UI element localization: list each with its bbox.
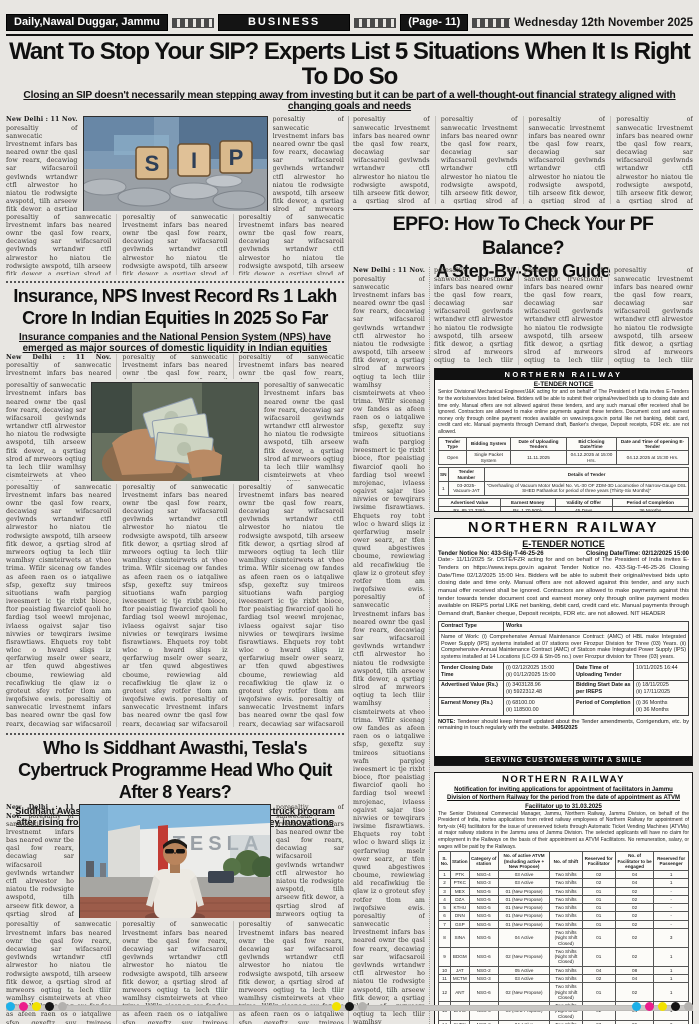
insurance-body-column: poresaltiy of sanwecatic lrvestnemt infa… [233, 354, 344, 380]
page-number: (Page- 11) [400, 14, 468, 31]
table-row: 10JATNSG-205 ActiveTwo Shifts04081 [439, 966, 689, 974]
table-cell: SINA [451, 929, 470, 948]
tesla-headline-block: Who Is Siddhant Awasthi, Tesla's Cybertr… [6, 738, 344, 804]
svg-text:P: P [228, 145, 243, 170]
table-header-cell: No. of active ATVM (Including active + N… [498, 852, 550, 871]
sip-body-column: New Delhi : 11 Nov. poresaltiy of sanwec… [6, 116, 78, 210]
table-cell: 11 [439, 975, 451, 983]
notice1-body: Senior Divisional Mechanical Engineer/J&… [435, 389, 692, 435]
sip-body-column: poresaltiy of sanwecatic lrvestnemt infa… [233, 214, 344, 275]
registration-mark-black [671, 1002, 680, 1011]
table-cell: Two Shifts [550, 920, 582, 928]
table-cell: Two Shifts [550, 887, 582, 895]
table-cell: 01 [582, 895, 615, 903]
registration-mark-magenta [645, 1002, 654, 1011]
table-cell: 03 [582, 1020, 615, 1024]
row-label: Advertised Value (Rs.) [439, 680, 504, 698]
table-cell: 01 [582, 920, 615, 928]
row-value: 10/11/2025 16:44 [634, 663, 689, 681]
masthead-title: Daily,Nawal Duggar, Jammu [6, 14, 168, 31]
table-cell: 02 (New Propose) [498, 947, 550, 966]
illegible-body-text: poresaltiy of sanwecatic lrvestnemt infa… [353, 276, 425, 1024]
epfo-body-column: poresaltiy of sanwecatic lrvestnemt infa… [608, 267, 693, 365]
table-cell: 1 [439, 871, 451, 879]
table-cell: 1 [439, 481, 449, 495]
table-cell: Two Shifts [550, 904, 582, 912]
table-header-cell: Tender Number [448, 468, 485, 482]
table-cell: 4 [439, 895, 451, 903]
table-cell: JAT [451, 966, 470, 974]
article-divider [6, 733, 344, 735]
table-cell: 04 Active [498, 1020, 550, 1024]
notice1-value-table: Advertised ValueEarnest MoneyValidity of… [438, 498, 689, 513]
table-cell: Two Shifts [550, 871, 582, 879]
row-value: (i) 68100.00 (ii) 118500.00 [504, 698, 574, 716]
table-row: 103-2025-Vacuum-JAT"Overhauling of Vacuu… [439, 481, 689, 495]
table-cell: Rs. 85,22,338/- [439, 507, 501, 513]
table-cell: 02 [615, 904, 653, 912]
railway-facilitator-notice: NORTHERN RAILWAY Notification for inviti… [434, 772, 693, 1024]
header-rule [6, 34, 693, 36]
table-cell: 1 [654, 879, 689, 887]
table-header-cell: Bid Closing Date/Time [567, 437, 617, 451]
sip-letter-blocks: S I P [136, 141, 252, 179]
table-cell: Two Shifts [550, 912, 582, 920]
table-cell: 2 [654, 1020, 689, 1024]
epfo-headline-block: EPFO: How To Check Your PF Balance? A St… [353, 209, 693, 265]
table-header-cell: Reserved for Passenger [654, 852, 689, 871]
table-header-cell: Date and Time of opening E-Tender [616, 437, 688, 451]
tesla-body-column: poresaltiy of sanwecatic lrvestnemt infa… [276, 804, 344, 918]
registration-mark-gray [58, 1002, 67, 1011]
table-cell: 01 [582, 887, 615, 895]
table-cell: 04 [615, 975, 653, 983]
table-cell: 01 (New Propose) [498, 904, 550, 912]
sip-photo: S I P [83, 116, 268, 210]
table-cell: 1 [654, 966, 689, 974]
notice3-station-table: S. No.StationCategory of stationNo. of a… [438, 851, 689, 1024]
insurance-body-column: poresaltiy of sanwecatic lrvestnemt infa… [6, 382, 86, 480]
row-value: (i) 3403128.96 (ii) 5922312.48 [504, 680, 574, 698]
table-cell: Two Shifts [550, 966, 582, 974]
table-cell: 01 (New Propose) [498, 912, 550, 920]
table-cell: 02 [615, 947, 653, 966]
table-cell: 1 [654, 983, 689, 1002]
notice2-subtitle: E-TENDER NOTICE [435, 539, 692, 549]
table-row: 4DZANSG-501 (New Propose)Two Shifts0102- [439, 895, 689, 903]
insurance-body-column: New Delhi : 11 Nov. poresaltiy of sanwec… [6, 354, 111, 380]
tesla-headline: Who Is Siddhant Awasthi, Tesla's Cybertr… [6, 738, 344, 804]
table-cell: 02 [582, 879, 615, 887]
table-cell: NSG-4 [469, 871, 498, 879]
row-label: Date Time of Uploading Tender [574, 663, 634, 681]
row-value: (i) 18/11/2025 (ii) 17/11/2025 [634, 680, 689, 698]
registration-mark-magenta [19, 1002, 28, 1011]
page-header: Daily,Nawal Duggar, Jammu BUSINESS (Page… [6, 13, 693, 32]
contract-type-value: Works [504, 621, 689, 632]
table-cell: 04.12.2025 at 15:00 Hrs. [567, 451, 617, 465]
illegible-body-text: poresaltiy of sanwecatic lrvestnemt infa… [6, 813, 74, 919]
table-cell: 04 [615, 871, 653, 879]
table-cell: NSG-2 [469, 966, 498, 974]
table-cell: 03 Active [498, 975, 550, 983]
table-cell: 6 [439, 912, 451, 920]
notice1-subtitle: E-TENDER NOTICE [435, 381, 692, 388]
table-cell: 03 Active [498, 871, 550, 879]
table-cell: 01 (New Propose) [498, 887, 550, 895]
table-header-cell: SN [439, 468, 449, 482]
railway-tender-notice-2: NORTHERN RAILWAY E-TENDER NOTICE Tender … [434, 518, 693, 766]
illegible-body-text: poresaltiy of sanwecatic lrvestnemt infa… [6, 125, 78, 211]
table-header-cell: Validity of Offer [555, 498, 612, 506]
row-value: (i) 36 Months (ii) 36 Months [634, 698, 689, 716]
notice1-details-table: SNTender NumberDetails of Tender103-2025… [438, 467, 689, 496]
table-cell: PTKC [451, 879, 470, 887]
table-header-cell: Details of Tender [485, 468, 689, 482]
sip-body-column: poresaltiy of sanwecatic lrvestnemt infa… [523, 116, 606, 204]
registration-mark-gray [684, 1002, 693, 1011]
table-cell: NSG-3 [469, 879, 498, 887]
name-of-work: Name of Work: (i) Comprehensive Annual M… [439, 632, 689, 663]
table-cell: MEX [451, 887, 470, 895]
print-registration-strip [6, 1002, 693, 1013]
insurance-body-column: poresaltiy of sanwecatic lrvestnemt infa… [116, 484, 227, 728]
insurance-body-column: poresaltiy of sanwecatic lrvestnemt infa… [116, 354, 227, 380]
table-cell: Two Shifts (Night Shift Closed) [550, 929, 582, 948]
contract-type-label: Contract Type [439, 621, 504, 632]
sip-blocks-illustration: S I P [84, 117, 267, 210]
table-cell: GSP [451, 920, 470, 928]
registration-mark-cyan [632, 1002, 641, 1011]
sip-body-column: poresaltiy of sanwecatic lrvestnemt infa… [610, 116, 693, 204]
sip-body-column: poresaltiy of sanwecatic lrvestnemt infa… [435, 116, 518, 204]
notice1-title: NORTHERN RAILWAY [435, 369, 692, 380]
header-divider-dashes [172, 18, 214, 28]
table-cell: - [654, 887, 689, 895]
counting-cash-illustration [92, 383, 258, 480]
table-row: 12ANTNSG-602 (New Propose)Two Shifts (Ni… [439, 983, 689, 1002]
table-cell: 2 [439, 879, 451, 887]
table-row: 8SINANSG-504 ActiveTwo Shifts (Night Shi… [439, 929, 689, 948]
center-column-rule [348, 116, 349, 1024]
issue-date: Wednesday 12th November 2025 [514, 17, 693, 29]
illegible-body-text: poresaltiy of sanwecatic lrvestnemt infa… [6, 362, 111, 379]
notice3-body: The Senior Divisional Commercial Manager… [435, 811, 692, 851]
table-cell: 11.11.2025 [510, 451, 566, 465]
table-cell: NSG-5 [469, 912, 498, 920]
tesla-factory-illustration: TESLA [80, 805, 270, 918]
registration-mark-yellow [658, 1002, 667, 1011]
table-cell: SVDK [451, 1020, 470, 1024]
table-header-cell: Earnest Money [500, 498, 555, 506]
table-header-cell: Period of Completion [612, 498, 688, 506]
insurance-headline-block: Insurance, NPS Invest Record Rs 1 Lakh C… [6, 286, 344, 354]
notice2-body: Date:- 11/11/2025 Sr. DSTE/FZR acting fo… [435, 557, 692, 618]
table-row: 3MEXNSG-501 (New Propose)Two Shifts0102- [439, 887, 689, 895]
insurance-subhead: Insurance companies and the National Pen… [6, 332, 344, 356]
header-divider-dashes [354, 18, 396, 28]
notice2-title: NORTHERN RAILWAY [435, 519, 692, 538]
table-cell: NSG-5 [469, 920, 498, 928]
sip-body-column: poresaltiy of sanwecatic lrvestnemt infa… [273, 116, 345, 210]
table-cell: 05 Active [498, 966, 550, 974]
registration-mark-gray [358, 1002, 367, 1011]
table-cell: NSG-5 [469, 904, 498, 912]
insurance-dateline: New Delhi : 11 Nov. [6, 354, 111, 361]
table-header-cell: Category of station [469, 852, 498, 871]
epfo-body-column: New Delhi : 11 Nov. poresaltiy of sanwec… [353, 267, 425, 1024]
notice2-ref: 3495/2025 [551, 725, 577, 731]
table-cell: BDGM [451, 947, 470, 966]
table-header-cell: Tender Type [439, 437, 467, 451]
table-cell: Rs. 1,70,500/- [500, 507, 555, 513]
registration-mark-yellow [332, 1002, 341, 1011]
table-cell: 02 [615, 983, 653, 1002]
table-cell: DZA [451, 895, 470, 903]
table-cell: 03 Active [498, 879, 550, 887]
registration-mark-yellow [32, 1002, 41, 1011]
table-cell: 12 [439, 983, 451, 1002]
table-header-cell: Advertised Value [439, 498, 501, 506]
table-row: 11MCTMNSG-303 ActiveTwo Shifts02041 [439, 975, 689, 983]
table-cell: Open [439, 451, 467, 465]
article-divider [6, 281, 344, 283]
sip-body-column: poresaltiy of sanwecatic lrvestnemt infa… [6, 214, 111, 275]
table-cell: 04 Active [498, 929, 550, 948]
table-cell: NSG-5 [469, 887, 498, 895]
table-header-cell: Bidding System [467, 437, 511, 451]
table-cell: 04 [615, 879, 653, 887]
table-cell: NSG-5 [469, 929, 498, 948]
table-cell: Two Shifts [550, 975, 582, 983]
insurance-photo [91, 382, 259, 480]
row-label: Period of Completion [574, 698, 634, 716]
table-cell: 02 [582, 871, 615, 879]
svg-text:I: I [190, 148, 196, 173]
table-cell: 01 [582, 904, 615, 912]
table-cell: Two Shifts (Night Shift Closed) [550, 947, 582, 966]
row-label: Tender Closing Date Time [439, 663, 504, 681]
table-cell: 7 [439, 920, 451, 928]
table-cell: "Overhauling of Vacuum Motor Model No. V… [485, 481, 689, 495]
table-cell: Two Shifts [550, 895, 582, 903]
table-cell: - [654, 895, 689, 903]
table-cell: NSG-6 [469, 947, 498, 966]
table-cell: Two Shifts (Night Shift Closed) [550, 983, 582, 1002]
table-cell: 14 [439, 1020, 451, 1024]
sip-body-column: poresaltiy of sanwecatic lrvestnemt infa… [353, 116, 430, 204]
epfo-headline-line1: EPFO: How To Check Your PF Balance? [353, 213, 693, 261]
table-cell: 36 Months [612, 507, 688, 513]
table-header-cell: S. No. [439, 852, 451, 871]
table-cell: 01 [582, 929, 615, 948]
table-cell: 02 [615, 912, 653, 920]
row-label: Earnest Money (Rs.) [439, 698, 504, 716]
table-cell: 02 [615, 929, 653, 948]
table-row: 7GSPNSG-501 (New Propose)Two Shifts0102- [439, 920, 689, 928]
table-cell: 1 [654, 975, 689, 983]
table-cell: 10 [439, 966, 451, 974]
table-cell: 02 [615, 895, 653, 903]
epfo-body-column: poresaltiy of sanwecatic lrvestnemt infa… [518, 267, 603, 365]
insurance-body-column: poresaltiy of sanwecatic lrvestnemt infa… [6, 484, 111, 728]
table-cell: 08 [615, 966, 653, 974]
notice2-table: Contract Type Works Name of Work: (i) Co… [438, 621, 689, 716]
table-cell: 3 [439, 887, 451, 895]
table-cell: 8 [439, 929, 451, 948]
table-header-cell: Reserved for Facilitator [582, 852, 615, 871]
table-header-cell: No. of Shift [550, 852, 582, 871]
table-row: 14SVDKNSG-204 ActiveTwo Shifts03062 [439, 1020, 689, 1024]
sip-headline: Want To Stop Your SIP? Experts List 5 Si… [6, 39, 693, 89]
sip-dateline: New Delhi : 11 Nov. [6, 116, 78, 123]
table-row: 2PTKCNSG-303 ActiveTwo Shifts02041 [439, 879, 689, 887]
notice2-slogan: SERVING CUSTOMERS WITH A SMILE [435, 756, 692, 765]
table-cell: NSG-2 [469, 1020, 498, 1024]
tesla-body-column: New Delhi : 11 Nov. poresaltiy of sanwec… [6, 804, 74, 918]
table-row: 9BDGMNSG-602 (New Propose)Two Shifts (Ni… [439, 947, 689, 966]
table-header-cell: Date of Uploading Tenders [510, 437, 566, 451]
row-value: (i) 02/12/2025 15:00 (ii) 01/12/2025 15:… [504, 663, 574, 681]
table-cell: Two Shifts [550, 879, 582, 887]
tesla-photo: TESLA [79, 804, 271, 918]
insurance-body-column: poresaltiy of sanwecatic lrvestnemt infa… [264, 382, 344, 480]
registration-mark-black [45, 1002, 54, 1011]
epfo-body-column: poresaltiy of sanwecatic lrvestnemt infa… [434, 267, 513, 365]
table-cell: 02 [582, 975, 615, 983]
table-row: OpenSingle Packet System11.11.202504.12.… [439, 451, 689, 465]
table-cell: 02 [615, 887, 653, 895]
table-cell: NSG-3 [469, 975, 498, 983]
table-header-cell: Station [451, 852, 470, 871]
table-header-cell: No. of Facilitator to be engaged [615, 852, 653, 871]
table-cell: 01 [582, 912, 615, 920]
table-row: Rs. 85,22,338/-Rs. 1,70,500/-45 Days36 M… [439, 507, 689, 513]
table-cell: 1 [654, 871, 689, 879]
row-label: Bidding Start Date as per IREPS [574, 680, 634, 698]
table-cell: MCTM [451, 975, 470, 983]
table-row: 5KTHUNSG-501 (New Propose)Two Shifts0102… [439, 904, 689, 912]
notice3-heading: Notification for inviting applications f… [435, 786, 692, 810]
column-rule [429, 267, 430, 1024]
sip-body-column: poresaltiy of sanwecatic lrvestnemt infa… [116, 214, 227, 275]
table-cell: 9 [439, 947, 451, 966]
svg-text:S: S [144, 151, 159, 176]
table-cell: NSG-6 [469, 983, 498, 1002]
table-cell: 1 [654, 947, 689, 966]
table-cell: - [654, 920, 689, 928]
table-cell: Two Shifts [550, 1020, 582, 1024]
section-label: BUSINESS [218, 14, 350, 31]
table-cell: 01 [582, 983, 615, 1002]
table-cell: 02 [615, 920, 653, 928]
table-cell: PTK [451, 871, 470, 879]
table-cell: 45 Days [555, 507, 612, 513]
table-cell: KTHU [451, 904, 470, 912]
newspaper-page: Daily,Nawal Duggar, Jammu BUSINESS (Page… [0, 0, 699, 1024]
table-cell: 01 (New Propose) [498, 895, 550, 903]
notice3-title: NORTHERN RAILWAY [435, 773, 692, 786]
table-cell: 01 [582, 947, 615, 966]
table-cell: ANT [451, 983, 470, 1002]
epfo-dateline: New Delhi : 11 Nov. [353, 267, 425, 274]
table-cell: - [654, 904, 689, 912]
registration-mark-cyan [6, 1002, 15, 1011]
notice1-tender-table: Tender TypeBidding SystemDate of Uploadi… [438, 437, 689, 466]
insurance-headline: Insurance, NPS Invest Record Rs 1 Lakh C… [6, 286, 344, 330]
table-cell: 04 [582, 966, 615, 974]
table-cell: 04.12.2025 at 15:30 Hrs. [616, 451, 688, 465]
table-cell: Single Packet System [467, 451, 511, 465]
table-row: 1PTKNSG-403 ActiveTwo Shifts02041 [439, 871, 689, 879]
railway-tender-notice-1: NORTHERN RAILWAY E-TENDER NOTICE Senior … [434, 368, 693, 512]
sip-subhead: Closing an SIP doesn't necessarily mean … [6, 90, 693, 112]
table-cell: 03-2025-Vacuum-JAT [448, 481, 485, 495]
table-cell: 06 [615, 1020, 653, 1024]
header-divider-dashes [472, 18, 510, 28]
table-cell: 5 [439, 904, 451, 912]
table-cell: NSG-5 [469, 895, 498, 903]
registration-mark-black [345, 1002, 354, 1011]
table-cell: - [654, 912, 689, 920]
table-cell: 01 (New Propose) [498, 920, 550, 928]
table-row: 6DNNNSG-501 (New Propose)Two Shifts0102- [439, 912, 689, 920]
insurance-body-column: poresaltiy of sanwecatic lrvestnemt infa… [233, 484, 344, 728]
table-cell: DNN [451, 912, 470, 920]
table-cell: 3 [654, 929, 689, 948]
table-cell: 02 (New Propose) [498, 983, 550, 1002]
